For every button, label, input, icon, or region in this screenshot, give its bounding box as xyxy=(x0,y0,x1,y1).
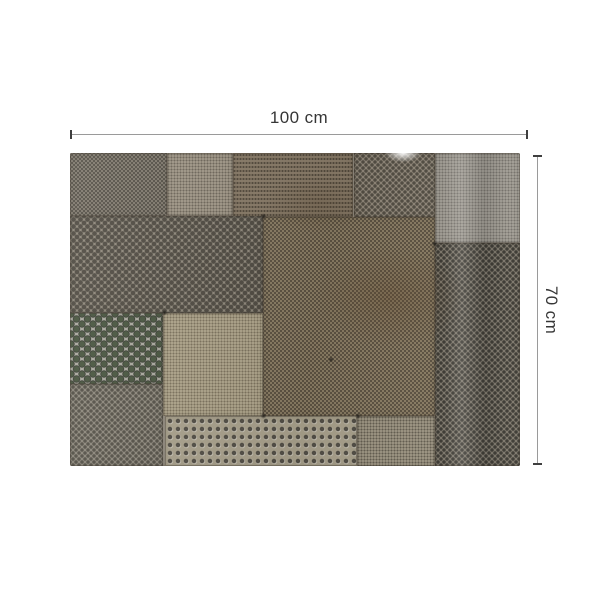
panel-top-left-mesh xyxy=(70,153,167,216)
panel-right-dotted xyxy=(435,243,520,466)
panel-top-right-grey xyxy=(435,153,520,243)
height-dimension-label: 70 cm xyxy=(541,286,561,334)
panel-bottom-rows xyxy=(165,416,358,466)
panel-top-brown-dash xyxy=(233,153,353,217)
height-dimension-line xyxy=(537,155,538,465)
product-dimension-diagram: 100 cm 70 cm xyxy=(0,0,600,600)
width-dimension-line xyxy=(70,134,528,135)
width-dimension-label: 100 cm xyxy=(70,108,528,128)
panel-left-big-holes xyxy=(70,313,163,384)
panel-top-polka xyxy=(354,153,436,217)
product-photo xyxy=(70,153,520,466)
panel-bottom-left-fine xyxy=(70,384,163,466)
panel-mid-cream xyxy=(163,313,263,416)
panel-center-mesh xyxy=(263,217,435,416)
panel-top-tan-fine xyxy=(167,153,233,216)
panel-mid-left-coarse xyxy=(70,216,263,313)
panel-bottom-fine xyxy=(357,416,435,466)
